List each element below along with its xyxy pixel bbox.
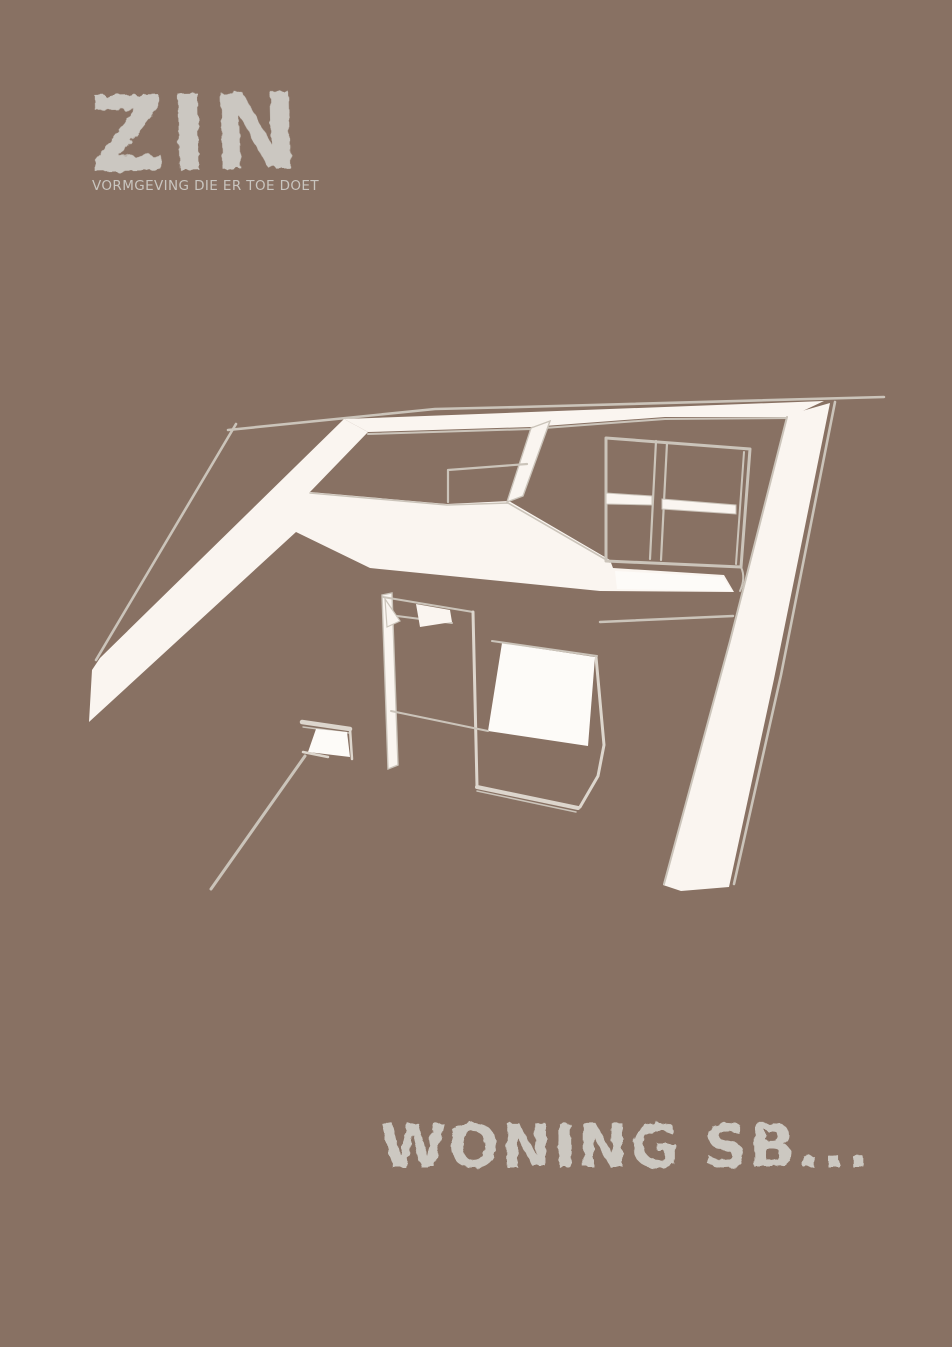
door-panel: [488, 643, 595, 746]
side-table: [211, 722, 352, 889]
door-bottom-edge: [477, 787, 578, 808]
side-table-panel: [308, 729, 350, 757]
floor-perspective-line: [211, 756, 305, 889]
wall-base-line: [391, 711, 488, 731]
project-title: WONING SB...: [380, 1112, 871, 1182]
project-title-svg: WONING SB...: [376, 1106, 896, 1196]
poster-page: ZIN VORMGEVING DIE ER TOE DOET WONING SB…: [0, 0, 952, 1347]
window-mullion-horizontal-right: [662, 499, 736, 514]
project-title-block: WONING SB...: [376, 1106, 896, 1196]
roof-slope-and-wall-band: [89, 419, 734, 722]
door-jamb-left: [473, 612, 477, 786]
window: [600, 438, 750, 622]
doorway: [382, 593, 604, 812]
window-mullion-horizontal-left: [606, 493, 652, 505]
window-sill-front-line: [600, 616, 733, 622]
wall-stud: [507, 421, 550, 502]
side-table-right-edge: [350, 729, 352, 759]
logo-tagline: VORMGEVING DIE ER TOE DOET: [92, 178, 319, 194]
brand-block: ZIN VORMGEVING DIE ER TOE DOET: [88, 82, 428, 202]
door-bottom-shadow-line: [477, 791, 576, 812]
